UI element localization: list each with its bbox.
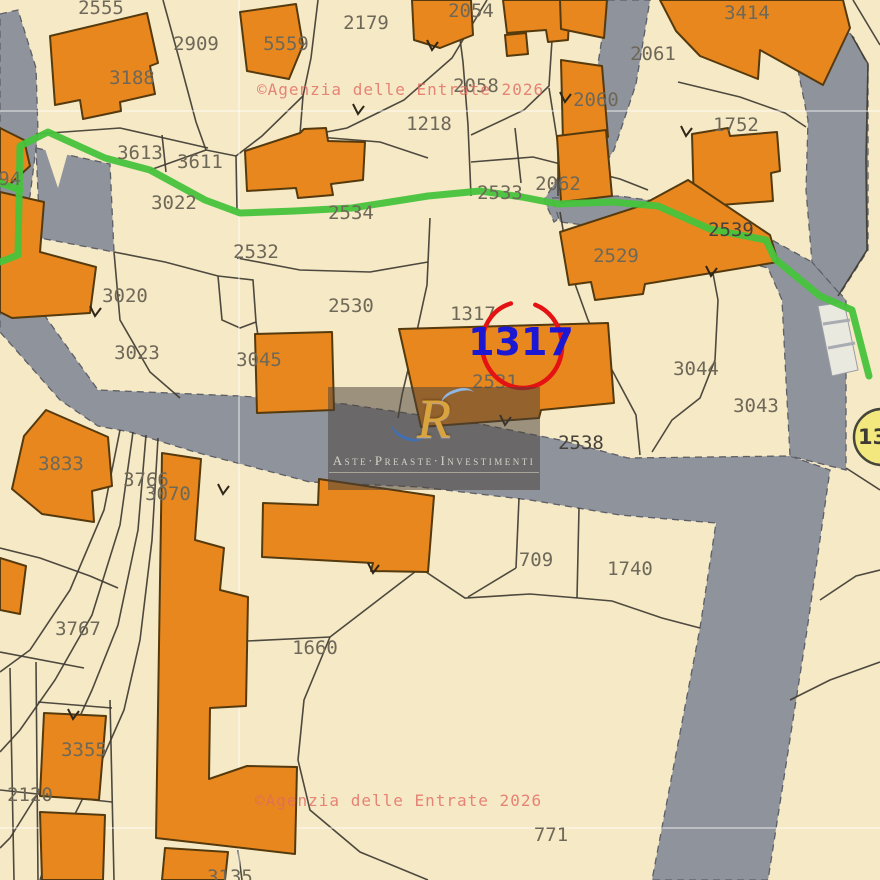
parcel-boundary-line [790, 662, 880, 700]
parcel-boundary-line [110, 700, 114, 880]
parcel-boundary-line [298, 637, 428, 880]
parcel-label-2539: 2539 [708, 219, 754, 241]
agency-watermark-text: ©Agenzia delle Entrate 2026 [255, 791, 542, 810]
road-surface [36, 148, 114, 252]
parcel-label-2909: 2909 [173, 33, 219, 55]
parcel-label-3020: 3020 [102, 285, 148, 307]
parcel-label-3767: 3767 [55, 618, 101, 640]
building-tick-mark [353, 104, 364, 114]
building-footprint [40, 812, 105, 880]
logo-monogram: R [417, 387, 451, 451]
parcel-label-3611: 3611 [177, 151, 223, 173]
parcel-boundary-line [114, 252, 180, 398]
parcel-label-494: 494 [0, 168, 21, 190]
parcel-boundary-line [0, 652, 84, 668]
parcel-label-3045: 3045 [236, 349, 282, 371]
parcel-label-2530: 2530 [328, 295, 374, 317]
parcel-label-709: 709 [519, 549, 553, 571]
parcel-boundary-line [853, 0, 880, 45]
building-footprint [262, 479, 434, 572]
parcel-label-2534: 2534 [328, 202, 374, 224]
parcel-boundary-line [10, 668, 14, 880]
building-footprint [255, 332, 334, 413]
parcel-label-3070: 3070 [145, 483, 191, 505]
parcel-boundary-line [300, 0, 318, 134]
parcel-label-1752: 1752 [713, 114, 759, 136]
parcel-label-5559: 5559 [263, 33, 309, 55]
parcel-label-2533: 2533 [477, 182, 523, 204]
building-tick-mark [90, 306, 101, 316]
parcel-boundary-line [114, 252, 218, 276]
parcel-label-2179: 2179 [343, 12, 389, 34]
parcel-boundary-line [846, 468, 880, 490]
parcel-label-3414: 3414 [724, 2, 770, 24]
parcel-label-2054: 2054 [448, 0, 494, 22]
parcel-label-3044: 3044 [673, 358, 719, 380]
parcel-label-2555: 2555 [78, 0, 124, 19]
parcel-boundary-line [577, 508, 579, 598]
parcel-label-2538: 2538 [558, 432, 604, 454]
parcel-label-2532: 2532 [233, 241, 279, 263]
parcel-boundary-line [236, 156, 237, 210]
building-tick-mark [681, 126, 692, 136]
building-footprint [0, 558, 26, 614]
cadastral-map-viewport: 2555290955593188217920542058206020613414… [0, 0, 880, 880]
agency-watermark-text: ©Agenzia delle Entrate 2026 [257, 80, 544, 99]
watermark-logo: R Aste·Preaste·Investimenti [328, 387, 540, 490]
parcel-label-2060: 2060 [573, 89, 619, 111]
parcel-label-3023: 3023 [114, 342, 160, 364]
parcel-label-3613: 3613 [117, 142, 163, 164]
parcel-boundary-line [36, 662, 38, 880]
parcel-label-1218: 1218 [406, 113, 452, 135]
parcel-label-1740: 1740 [607, 558, 653, 580]
parcel-boundary-line [820, 570, 880, 600]
parcel-label-771: 771 [534, 824, 568, 846]
parcel-label-1660: 1660 [292, 637, 338, 659]
road-marker-number: 13 [858, 425, 880, 449]
parcel-boundary-line [218, 276, 256, 328]
parcel-label-3135: 3135 [207, 866, 253, 880]
building-tick-mark [218, 484, 229, 494]
parcel-label-3188: 3188 [109, 67, 155, 89]
parcel-label-2062: 2062 [535, 173, 581, 195]
parcel-label-2061: 2061 [630, 43, 676, 65]
logo-caption: Aste·Preaste·Investimenti [329, 453, 540, 473]
building-footprint [245, 128, 365, 198]
parcel-label-2120: 2120 [7, 784, 53, 806]
building-footprint [505, 33, 528, 56]
parcel-label-3043: 3043 [733, 395, 779, 417]
parcel-label-3355: 3355 [61, 739, 107, 761]
parcel-label-2529: 2529 [593, 245, 639, 267]
parcel-boundary-line [515, 128, 521, 183]
parcel-label-3022: 3022 [151, 192, 197, 214]
highlight-parcel-number: 1317 [468, 320, 574, 364]
parcel-label-3833: 3833 [38, 453, 84, 475]
parcel-boundary-line [468, 568, 516, 597]
building-footprint [50, 13, 158, 119]
parcel-boundary-line [38, 702, 112, 708]
parcel-boundary-line [163, 0, 206, 150]
